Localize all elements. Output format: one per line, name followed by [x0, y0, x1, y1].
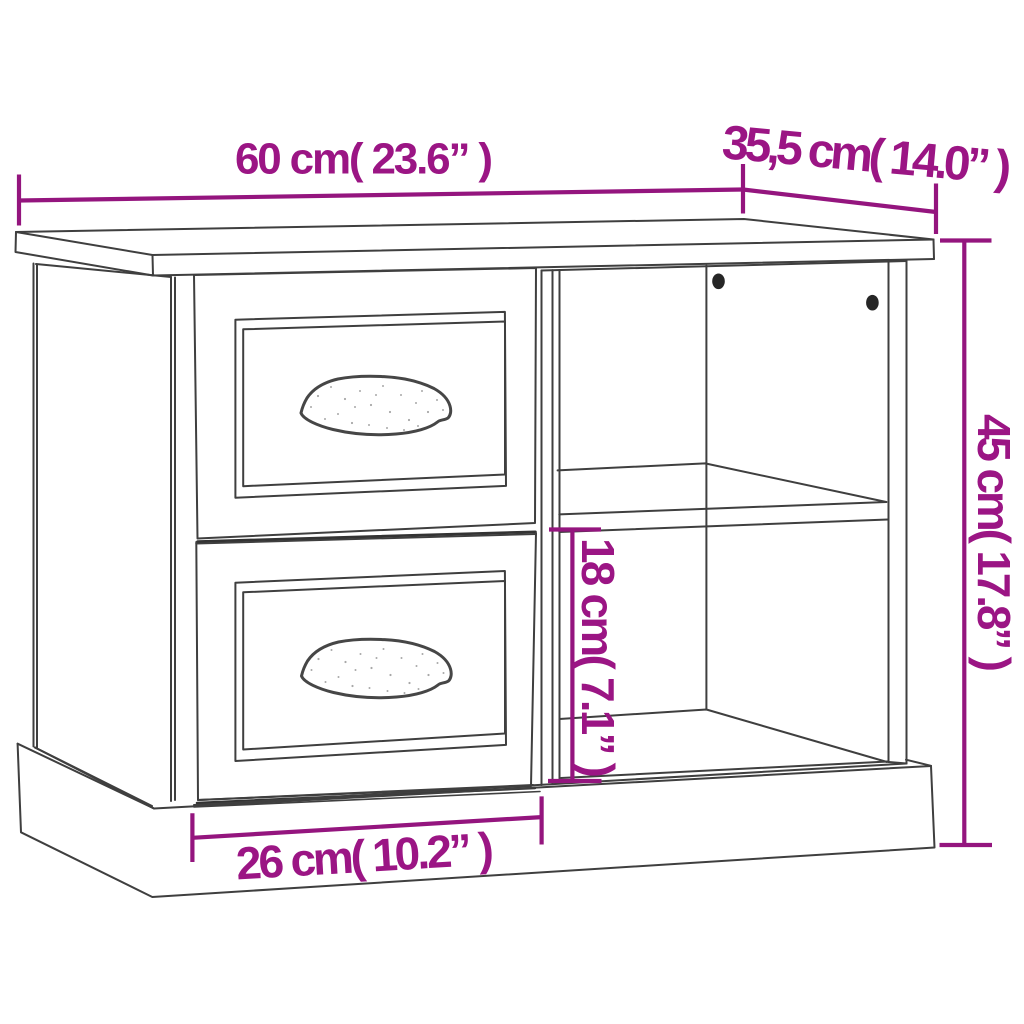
- svg-text:60 cm( 23.6” ): 60 cm( 23.6” ): [235, 134, 493, 183]
- svg-text:45 cm( 17.8” ): 45 cm( 17.8” ): [968, 414, 1020, 672]
- svg-text:18 cm( 7.1” ): 18 cm( 7.1” ): [572, 538, 624, 778]
- svg-text:35,5 cm( 14.0” ): 35,5 cm( 14.0” ): [720, 116, 1014, 195]
